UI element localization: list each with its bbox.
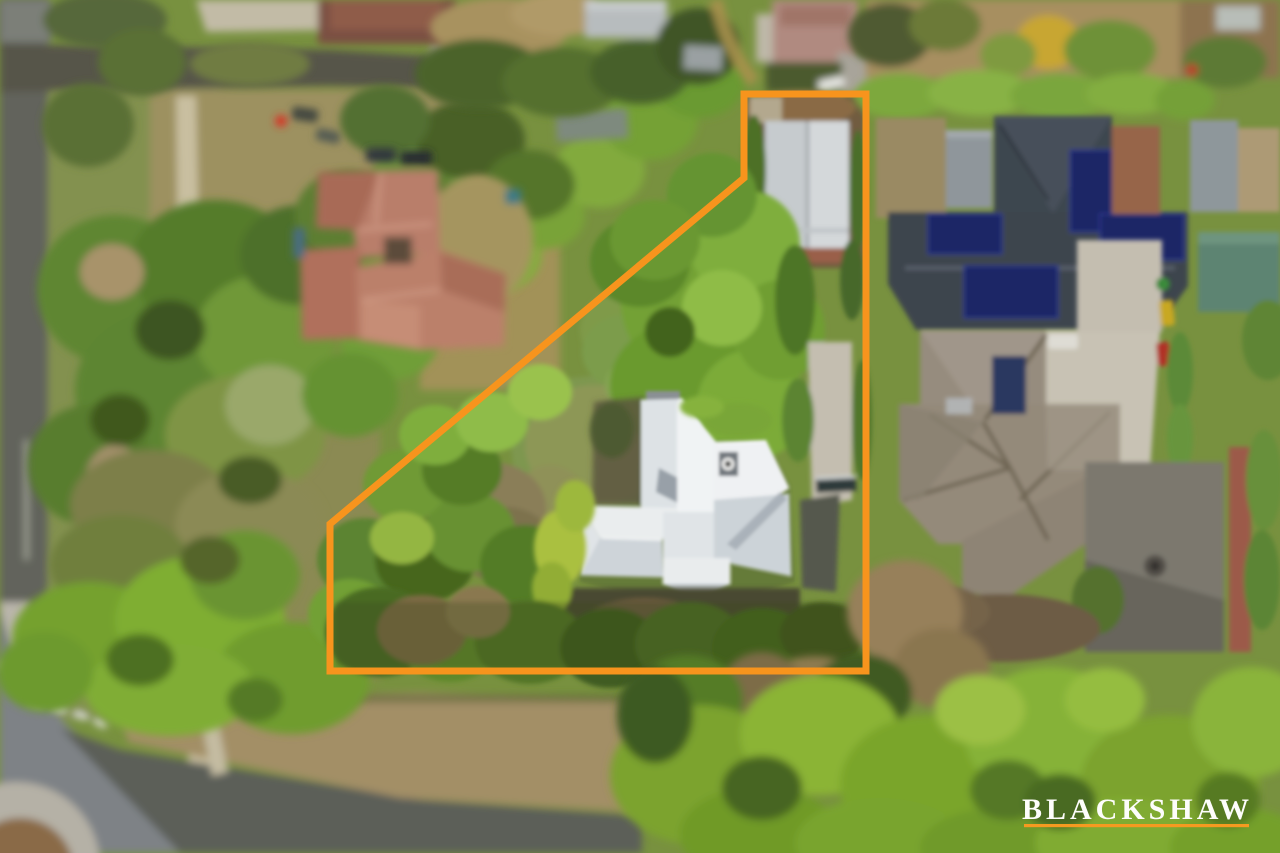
svg-text:BLACKSHAW: BLACKSHAW [1022, 793, 1253, 826]
